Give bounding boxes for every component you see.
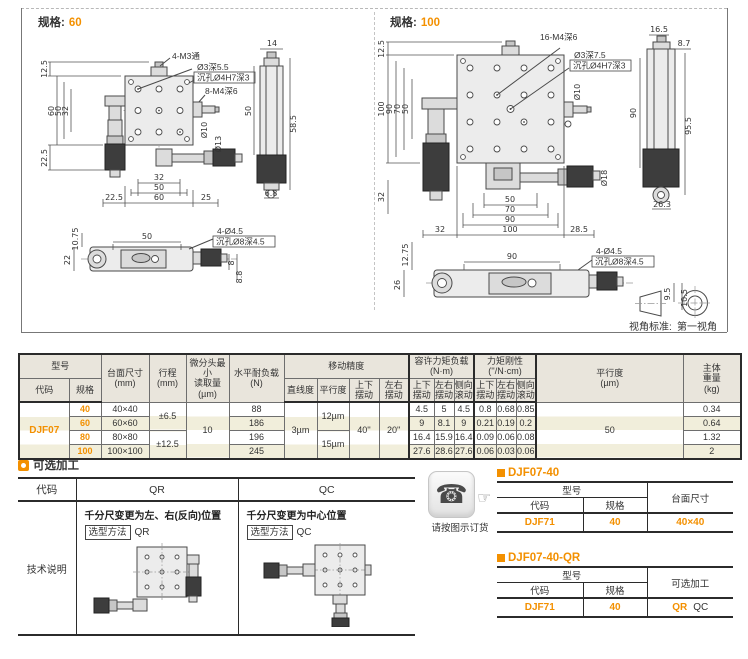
optional-section-header: 可选加工	[18, 457, 79, 473]
drill-label: 4-Ø4.5	[217, 226, 243, 236]
tech-note-label: 技术说明	[18, 501, 76, 635]
drill-label: 4-M3通	[172, 51, 200, 61]
first-angle-symbol	[635, 286, 712, 320]
order-example-title: DJF07-40	[508, 467, 559, 479]
dim-label: 50	[401, 104, 410, 114]
method-box: 选型方法	[85, 525, 131, 540]
dim-label: 32	[377, 192, 386, 202]
section-bullet-icon	[18, 460, 29, 471]
qc-description: 千分尺变更为中心位置	[239, 502, 416, 524]
dim-label: 90	[505, 215, 515, 224]
dim-label: 32	[61, 106, 70, 116]
drill-label: 16-M4深6	[540, 32, 578, 42]
table-row: 技术说明 千分尺变更为左、右(反向)位置 选型方法 QR	[18, 501, 415, 635]
dim-label: Ø10	[572, 84, 582, 100]
method-box: 选型方法	[247, 525, 293, 540]
dim-label: 70	[505, 205, 515, 214]
divider	[727, 8, 728, 332]
drill-label: 4-Ø4.5	[596, 246, 622, 256]
model-code: DJF07	[19, 402, 69, 459]
dim-label: 58.5	[289, 115, 298, 133]
dim-label: Ø10	[199, 122, 209, 138]
qr-cell: 千分尺变更为左、右(反向)位置 选型方法 QR	[76, 501, 238, 635]
table-header-row: 型号 台面尺寸 (mm) 行程 (mm) 微分头最小 读取量 (µm) 水平耐负…	[19, 354, 741, 378]
divider	[21, 332, 727, 333]
method-value: QC	[297, 527, 312, 538]
dim-label: 100	[502, 225, 517, 234]
drill-label: 8-M4深6	[205, 86, 238, 96]
table-row: DJF71 40 QRQC	[497, 598, 733, 617]
dim-label: 25	[201, 193, 211, 202]
table-header-row: 代码 QR QC	[18, 478, 415, 501]
dim-label: 26	[393, 280, 402, 290]
pointing-hand-icon: ☞	[477, 488, 491, 508]
drill-label: 沉孔Ø8深4.5	[595, 257, 644, 267]
order-note: 请按图示订货	[420, 520, 500, 534]
drill-label: Ø3深7.5	[574, 50, 606, 60]
dim-label: 12.5	[377, 40, 386, 58]
dim-label: 10.75	[71, 228, 80, 251]
spec-table: 型号 台面尺寸 (mm) 行程 (mm) 微分头最小 读取量 (µm) 水平耐负…	[18, 353, 742, 460]
dim-label: Ø18	[599, 170, 609, 186]
table-header-row: 型号 可选加工	[497, 567, 733, 583]
bullet-icon	[497, 469, 505, 477]
optional-table: 代码 QR QC 技术说明 千分尺变更为左、右(反向)位置 选型方法 QR	[18, 477, 415, 636]
order-example-1: DJF07-40 型号 台面尺寸 代码 规格 DJF71 40 40×40	[497, 467, 733, 533]
dim-label: 12.5	[40, 60, 49, 78]
method-value: QR	[135, 527, 150, 538]
dim-label: 8.7	[678, 39, 691, 48]
dim-label: 50	[154, 183, 164, 192]
section-title: 可选加工	[33, 457, 79, 473]
dim-label: 8	[227, 260, 236, 265]
order-table: 型号 可选加工 代码 规格 DJF71 40 QRQC	[497, 566, 733, 618]
dim-label: 60	[154, 193, 164, 202]
dim-label: 28.5	[570, 225, 588, 234]
spec100-drawing: 16-M4深6 Ø3深7.5 沉孔Ø4H7深3 Ø10 Ø18 12.5 100…	[374, 8, 727, 332]
table-row: DJF07 40 40×40 ±6.5 10 88 3µm 12µm 40'' …	[19, 402, 741, 417]
qr-mini-drawing	[93, 543, 221, 627]
dim-label: 22.5	[40, 149, 49, 167]
dim-label: 32	[154, 173, 164, 182]
drill-label: 沉孔Ø8深4.5	[216, 237, 265, 247]
dim-label: 6.8	[265, 189, 278, 198]
dim-label: 50	[142, 232, 152, 241]
dim-label: 90	[629, 108, 638, 118]
drill-label: Ø3深5.5	[197, 62, 229, 72]
dim-label: 95.5	[684, 117, 693, 135]
qc-cell: 千分尺变更为中心位置 选型方法 QC	[238, 501, 415, 635]
hole-pattern	[129, 80, 190, 142]
dim-label: 50	[505, 195, 515, 204]
dim-label: 26.3	[653, 200, 671, 209]
qr-description: 千分尺变更为左、右(反向)位置	[77, 502, 238, 524]
dim-label: 8.8	[235, 271, 244, 284]
table-header-row: 型号 台面尺寸	[497, 482, 733, 498]
view-standard-label: 视角标准:	[629, 320, 672, 332]
dim-label: 14	[267, 39, 277, 48]
dim-label: 22.5	[105, 193, 123, 202]
dim-label: Ø13	[213, 136, 223, 152]
bullet-icon	[497, 554, 505, 562]
qc-mini-drawing	[263, 543, 391, 627]
drill-label: 沉孔Ø4H7深3	[197, 73, 250, 83]
view-standard-value: 第一视角	[677, 320, 717, 332]
order-example-2: DJF07-40-QR 型号 可选加工 代码 规格 DJF71 40 QRQC	[497, 552, 733, 618]
dim-label: 12.75	[401, 244, 410, 267]
catalog-page: 规格:60 规格:100	[0, 0, 748, 659]
order-table: 型号 台面尺寸 代码 规格 DJF71 40 40×40	[497, 481, 733, 533]
dim-label: 9.5	[663, 288, 672, 301]
dim-label: 22	[63, 255, 72, 265]
dim-label: 32	[435, 225, 445, 234]
dim-label: 90	[507, 252, 517, 261]
spec60-drawing: 4-M3通 Ø3深5.5 沉孔Ø4H7深3 8-M4深6 Ø10 Ø13 12.…	[21, 8, 374, 332]
table-row: DJF71 40 40×40	[497, 513, 733, 532]
opt-qr: QR	[672, 602, 687, 613]
opt-qc: QC	[693, 602, 708, 613]
dim-label: 16.5	[650, 25, 668, 34]
drill-label: 沉孔Ø4H7深3	[573, 61, 626, 71]
phone-icon: ☎	[428, 471, 475, 518]
dim-label: 50	[244, 106, 253, 116]
order-example-title: DJF07-40-QR	[508, 552, 580, 564]
